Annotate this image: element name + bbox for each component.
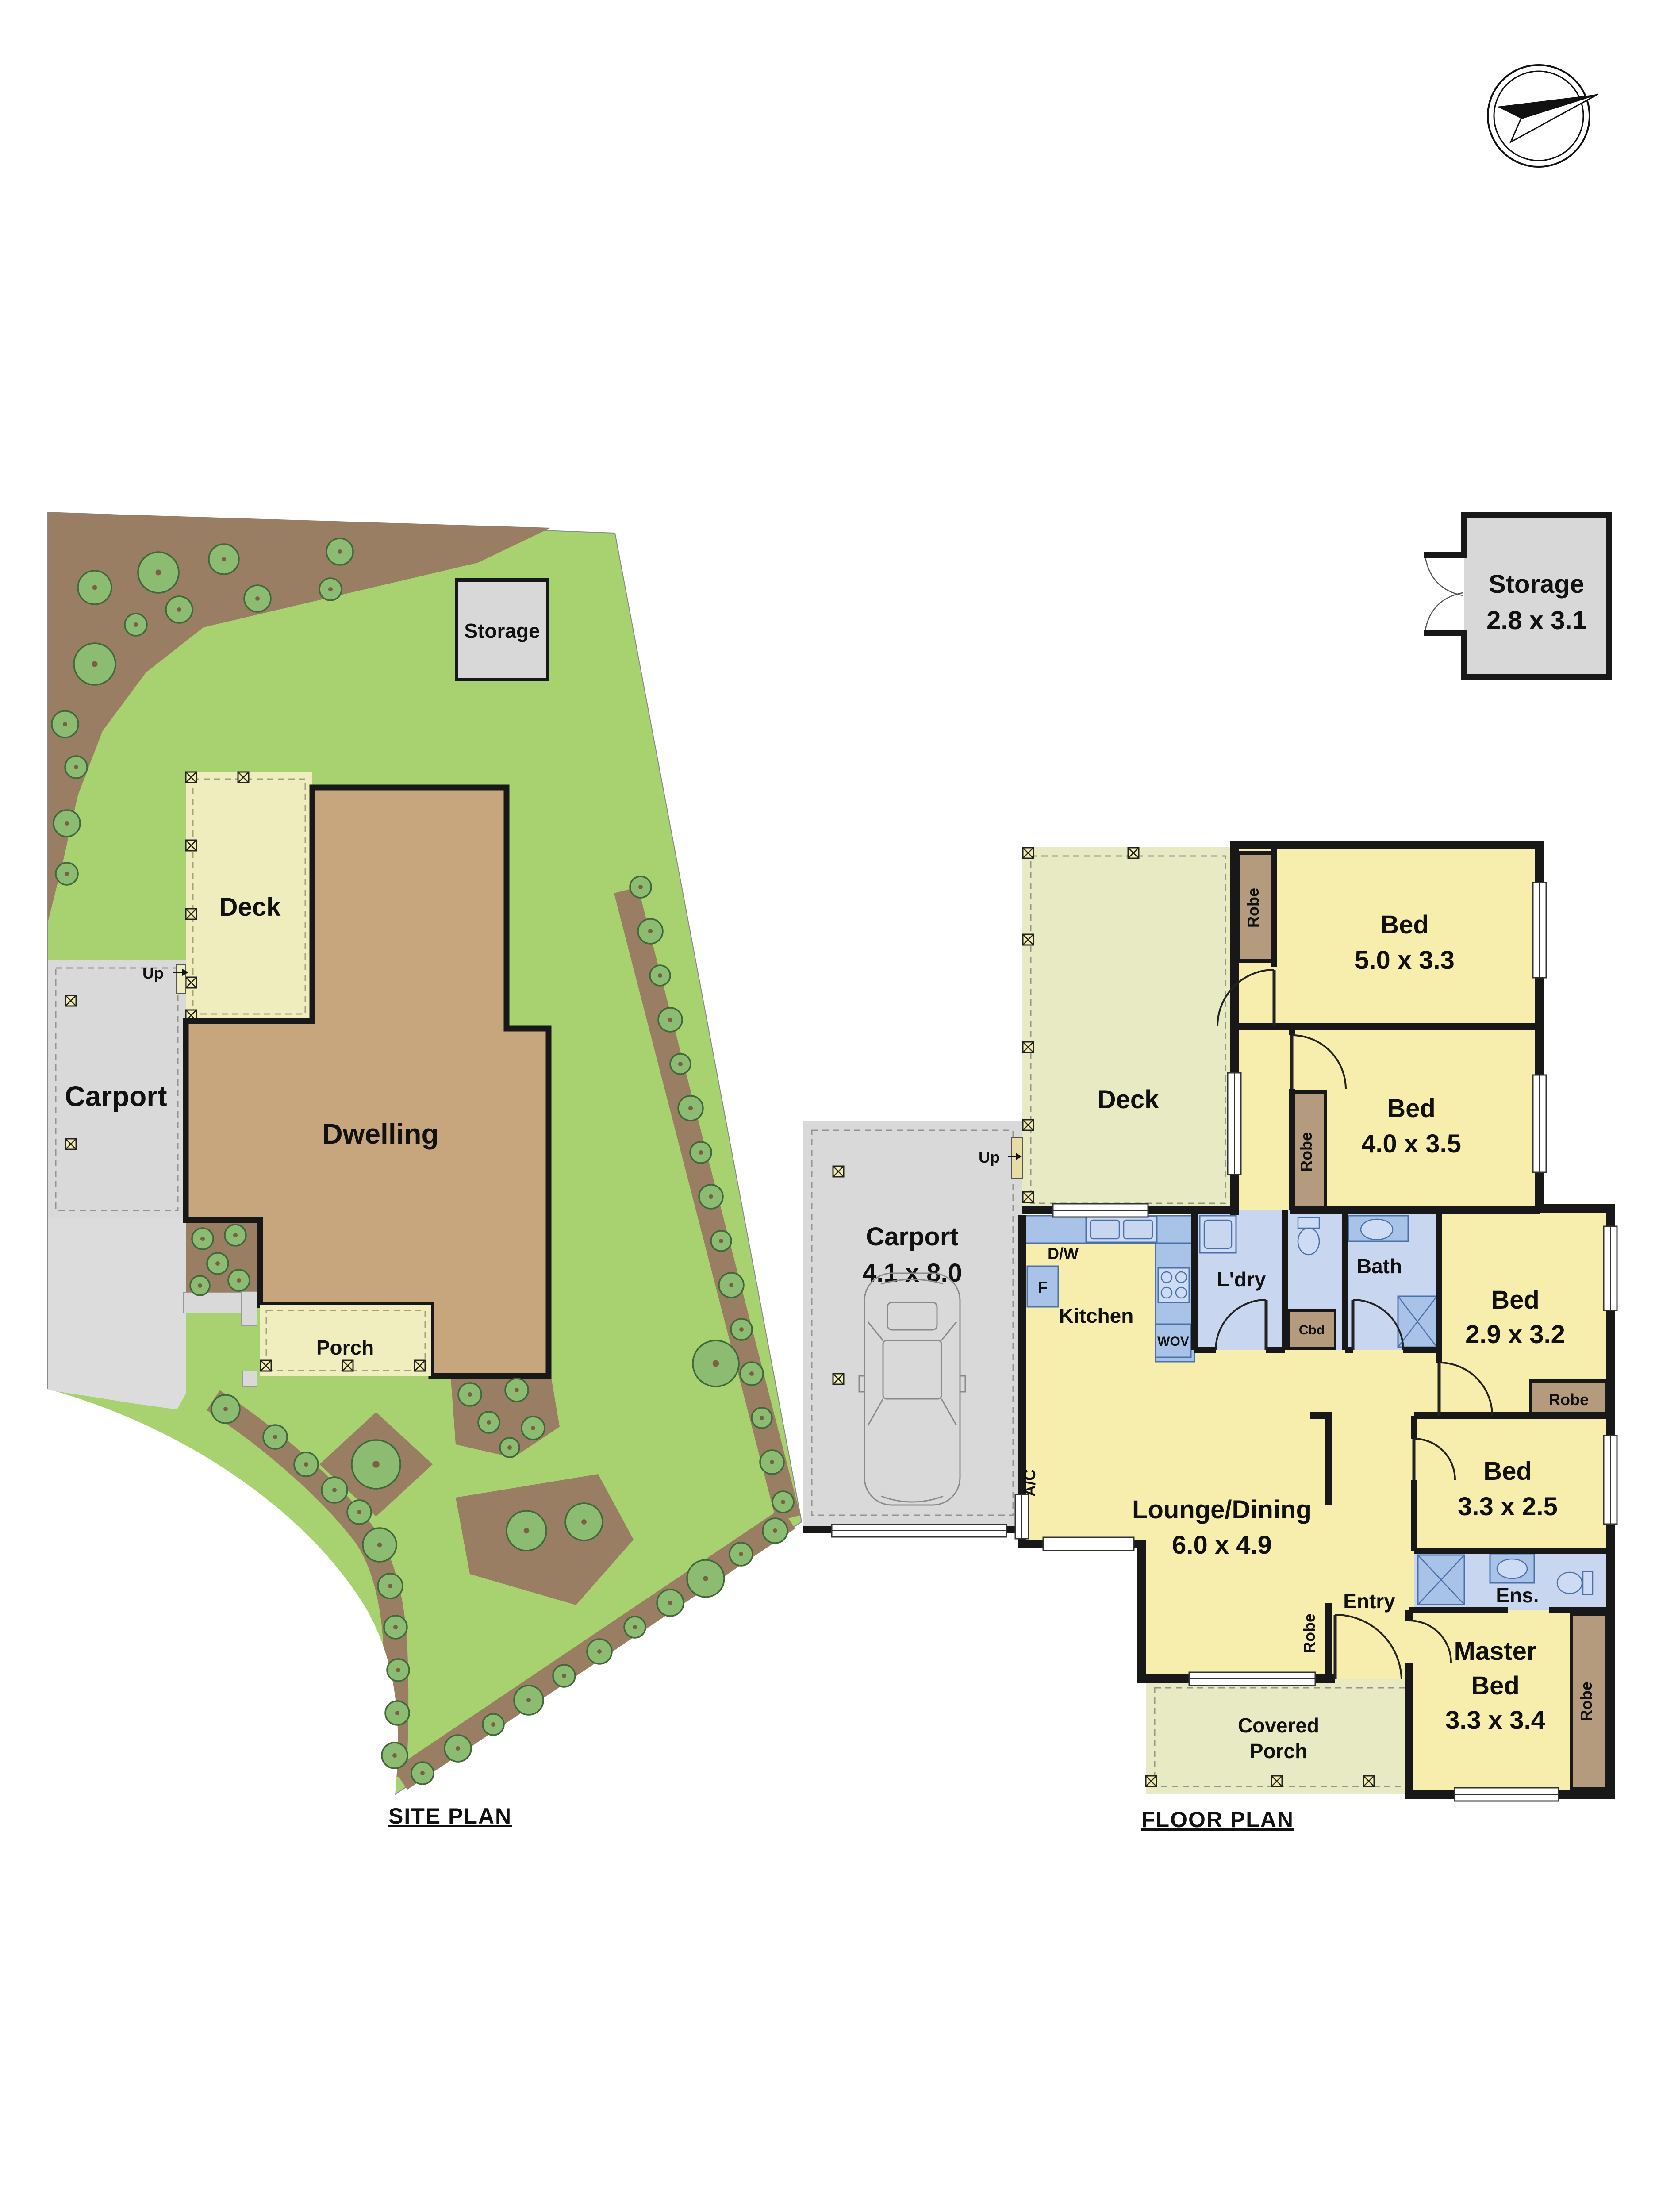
fp-up-label: Up <box>979 1148 1000 1166</box>
tree-icon <box>638 919 663 944</box>
tree-icon <box>225 1225 246 1246</box>
bed4-label: Bed <box>1483 1457 1532 1486</box>
window <box>1228 1073 1241 1175</box>
robe-bed3-label: Robe <box>1549 1390 1589 1409</box>
toilet-icon <box>1298 1217 1319 1255</box>
site-storage-label: Storage <box>464 619 540 642</box>
storage-detail-dims: 2.8 x 3.1 <box>1486 606 1586 635</box>
wov-label: WOV <box>1157 1334 1189 1349</box>
site-deck: Deck <box>186 772 312 1021</box>
cbd-label: Cbd <box>1299 1323 1325 1337</box>
tree-icon <box>565 1503 603 1540</box>
tree-icon <box>678 1096 703 1121</box>
entry-label: Entry <box>1343 1590 1395 1613</box>
tree-icon <box>56 863 78 885</box>
window <box>1455 1788 1559 1801</box>
tree-icon <box>687 1560 724 1597</box>
tree-icon <box>650 965 670 986</box>
site-plan: Carport Storage Deck Up Dwelling <box>25 512 802 1823</box>
fp-covered-porch-label2: Porch <box>1250 1740 1307 1763</box>
tree-icon <box>54 810 80 837</box>
dw-label: D/W <box>1048 1244 1079 1263</box>
tree-icon <box>387 1659 409 1681</box>
tree-icon <box>740 1362 763 1385</box>
tree-icon <box>760 1450 784 1474</box>
site-carport: Carport <box>48 960 186 1218</box>
tree-icon <box>125 614 147 636</box>
bed3-dims: 2.9 x 3.2 <box>1465 1320 1565 1349</box>
tree-icon <box>658 1008 682 1032</box>
tree-icon <box>505 1379 528 1402</box>
tree-icon <box>322 1477 347 1503</box>
kitchen-label: Kitchen <box>1059 1304 1134 1327</box>
tree-icon <box>553 1665 575 1687</box>
tree-icon <box>385 1701 409 1725</box>
robe-bed1-label: Robe <box>1244 888 1262 928</box>
fp-deck-label: Deck <box>1098 1085 1159 1114</box>
storage-detail-label: Storage <box>1489 570 1584 599</box>
tree-icon <box>763 1518 787 1543</box>
north-arrow-icon <box>1488 65 1598 167</box>
tree-icon <box>228 1270 250 1291</box>
tree-icon <box>411 1762 434 1784</box>
sink-icon <box>1086 1217 1157 1242</box>
robe-bed2-label: Robe <box>1297 1132 1315 1172</box>
ens-label: Ens. <box>1496 1584 1539 1607</box>
bed2-label: Bed <box>1387 1094 1436 1123</box>
tree-icon <box>730 1543 753 1566</box>
tree-icon <box>711 1231 731 1251</box>
tree-icon <box>731 1319 752 1340</box>
tree-icon <box>211 1395 240 1423</box>
floor-plan-title: FLOOR PLAN <box>1141 1807 1294 1832</box>
fp-covered-porch-label1: Covered <box>1238 1714 1319 1737</box>
ens-vanity-icon <box>1490 1554 1534 1583</box>
tree-icon <box>378 1574 403 1598</box>
tree-icon <box>772 1491 794 1513</box>
master-dims: 3.3 x 3.4 <box>1445 1706 1545 1735</box>
bed2-dims: 4.0 x 3.5 <box>1361 1129 1461 1158</box>
robe-master-label: Robe <box>1577 1682 1595 1721</box>
tree-icon <box>52 711 78 737</box>
window <box>1533 1075 1546 1172</box>
tree-icon <box>263 1425 287 1449</box>
master-label1: Master <box>1454 1637 1537 1666</box>
storage-door-arc <box>1425 558 1463 595</box>
tree-icon <box>209 544 239 574</box>
tree-icon <box>522 1417 545 1440</box>
tree-icon <box>347 1500 371 1524</box>
tree-icon <box>478 1412 499 1433</box>
window <box>1533 883 1546 978</box>
tree-icon <box>699 1185 723 1209</box>
ens-shower-icon <box>1418 1555 1464 1605</box>
tree-icon <box>587 1639 612 1664</box>
tree-icon <box>294 1452 318 1476</box>
tree-icon <box>319 578 342 600</box>
fp-covered-porch: Covered Porch <box>1146 1679 1418 1794</box>
cooktop-icon <box>1158 1268 1189 1302</box>
window <box>1604 1226 1617 1310</box>
master-label2: Bed <box>1471 1671 1520 1700</box>
ldry-label: L'dry <box>1217 1268 1266 1291</box>
fp-carport: Carport 4.1 x 8.0 <box>803 1121 1022 1537</box>
tree-icon <box>670 1054 691 1074</box>
window <box>1189 1672 1315 1686</box>
window <box>1053 1204 1148 1217</box>
tree-icon <box>207 1253 228 1274</box>
window <box>1015 1494 1029 1539</box>
fp-carport-sill <box>832 1525 1006 1537</box>
site-dwelling-label: Dwelling <box>322 1118 438 1150</box>
site-carport-label: Carport <box>65 1080 167 1112</box>
storage-door-arc <box>1425 593 1463 630</box>
tree-icon <box>624 1617 645 1638</box>
site-up-label: Up <box>142 964 164 982</box>
tree-icon <box>384 1616 407 1639</box>
tree-icon <box>244 585 271 612</box>
tree-icon <box>507 1511 546 1551</box>
tree-icon <box>752 1408 772 1428</box>
shower-icon <box>1398 1296 1437 1347</box>
tree-icon <box>657 1590 684 1616</box>
tree-icon <box>500 1438 519 1457</box>
fp-carport-label: Carport <box>866 1222 958 1251</box>
fp-deck: Deck <box>1022 847 1234 1212</box>
bed1-label: Bed <box>1380 910 1429 939</box>
tree-icon <box>190 1276 210 1295</box>
ens-toilet-icon <box>1557 1571 1593 1594</box>
tree-icon <box>719 1273 744 1298</box>
tree-icon <box>363 1528 396 1562</box>
plan-page: Storage 2.8 x 3.1 Carport <box>0 0 1655 2212</box>
plan-canvas: Storage 2.8 x 3.1 Carport <box>0 0 1655 2212</box>
tree-icon <box>483 1714 504 1735</box>
tree-icon <box>74 643 115 685</box>
tree-icon <box>326 538 353 565</box>
window <box>1043 1537 1134 1551</box>
ac-label: A/C <box>1021 1469 1039 1497</box>
site-driveway <box>48 1218 186 1409</box>
tree-icon <box>458 1383 481 1406</box>
site-storage: Storage <box>457 580 548 680</box>
tree-icon <box>690 1142 711 1163</box>
site-plan-title: SITE PLAN <box>388 1804 512 1828</box>
site-porch: Porch <box>260 1305 431 1376</box>
bed3-label: Bed <box>1491 1286 1540 1314</box>
site-deck-label: Deck <box>219 893 281 922</box>
lounge-dims: 6.0 x 4.9 <box>1172 1531 1272 1559</box>
floor-plan: Deck Carport 4.1 x 8.0 <box>803 845 1617 1801</box>
tree-icon <box>192 1228 213 1249</box>
tree-icon <box>138 552 179 593</box>
tree-icon <box>693 1340 739 1386</box>
storage-detail: Storage 2.8 x 3.1 <box>1424 515 1609 677</box>
tree-icon <box>78 571 111 604</box>
robe-entry-label: Robe <box>1300 1613 1318 1653</box>
bed1-dims: 5.0 x 3.3 <box>1355 946 1455 975</box>
tree-icon <box>352 1440 400 1489</box>
tree-icon <box>445 1735 471 1762</box>
lounge-label: Lounge/Dining <box>1132 1495 1312 1524</box>
bath-label: Bath <box>1357 1255 1402 1278</box>
bed4-dims: 3.3 x 2.5 <box>1458 1492 1558 1521</box>
fridge-label: F <box>1038 1278 1048 1296</box>
tree-icon <box>514 1686 543 1715</box>
tree-icon <box>382 1743 407 1768</box>
window <box>1604 1436 1617 1524</box>
site-porch-label: Porch <box>316 1336 374 1359</box>
tree-icon <box>166 596 192 623</box>
tree-icon <box>65 756 87 778</box>
tree-icon <box>630 876 651 898</box>
